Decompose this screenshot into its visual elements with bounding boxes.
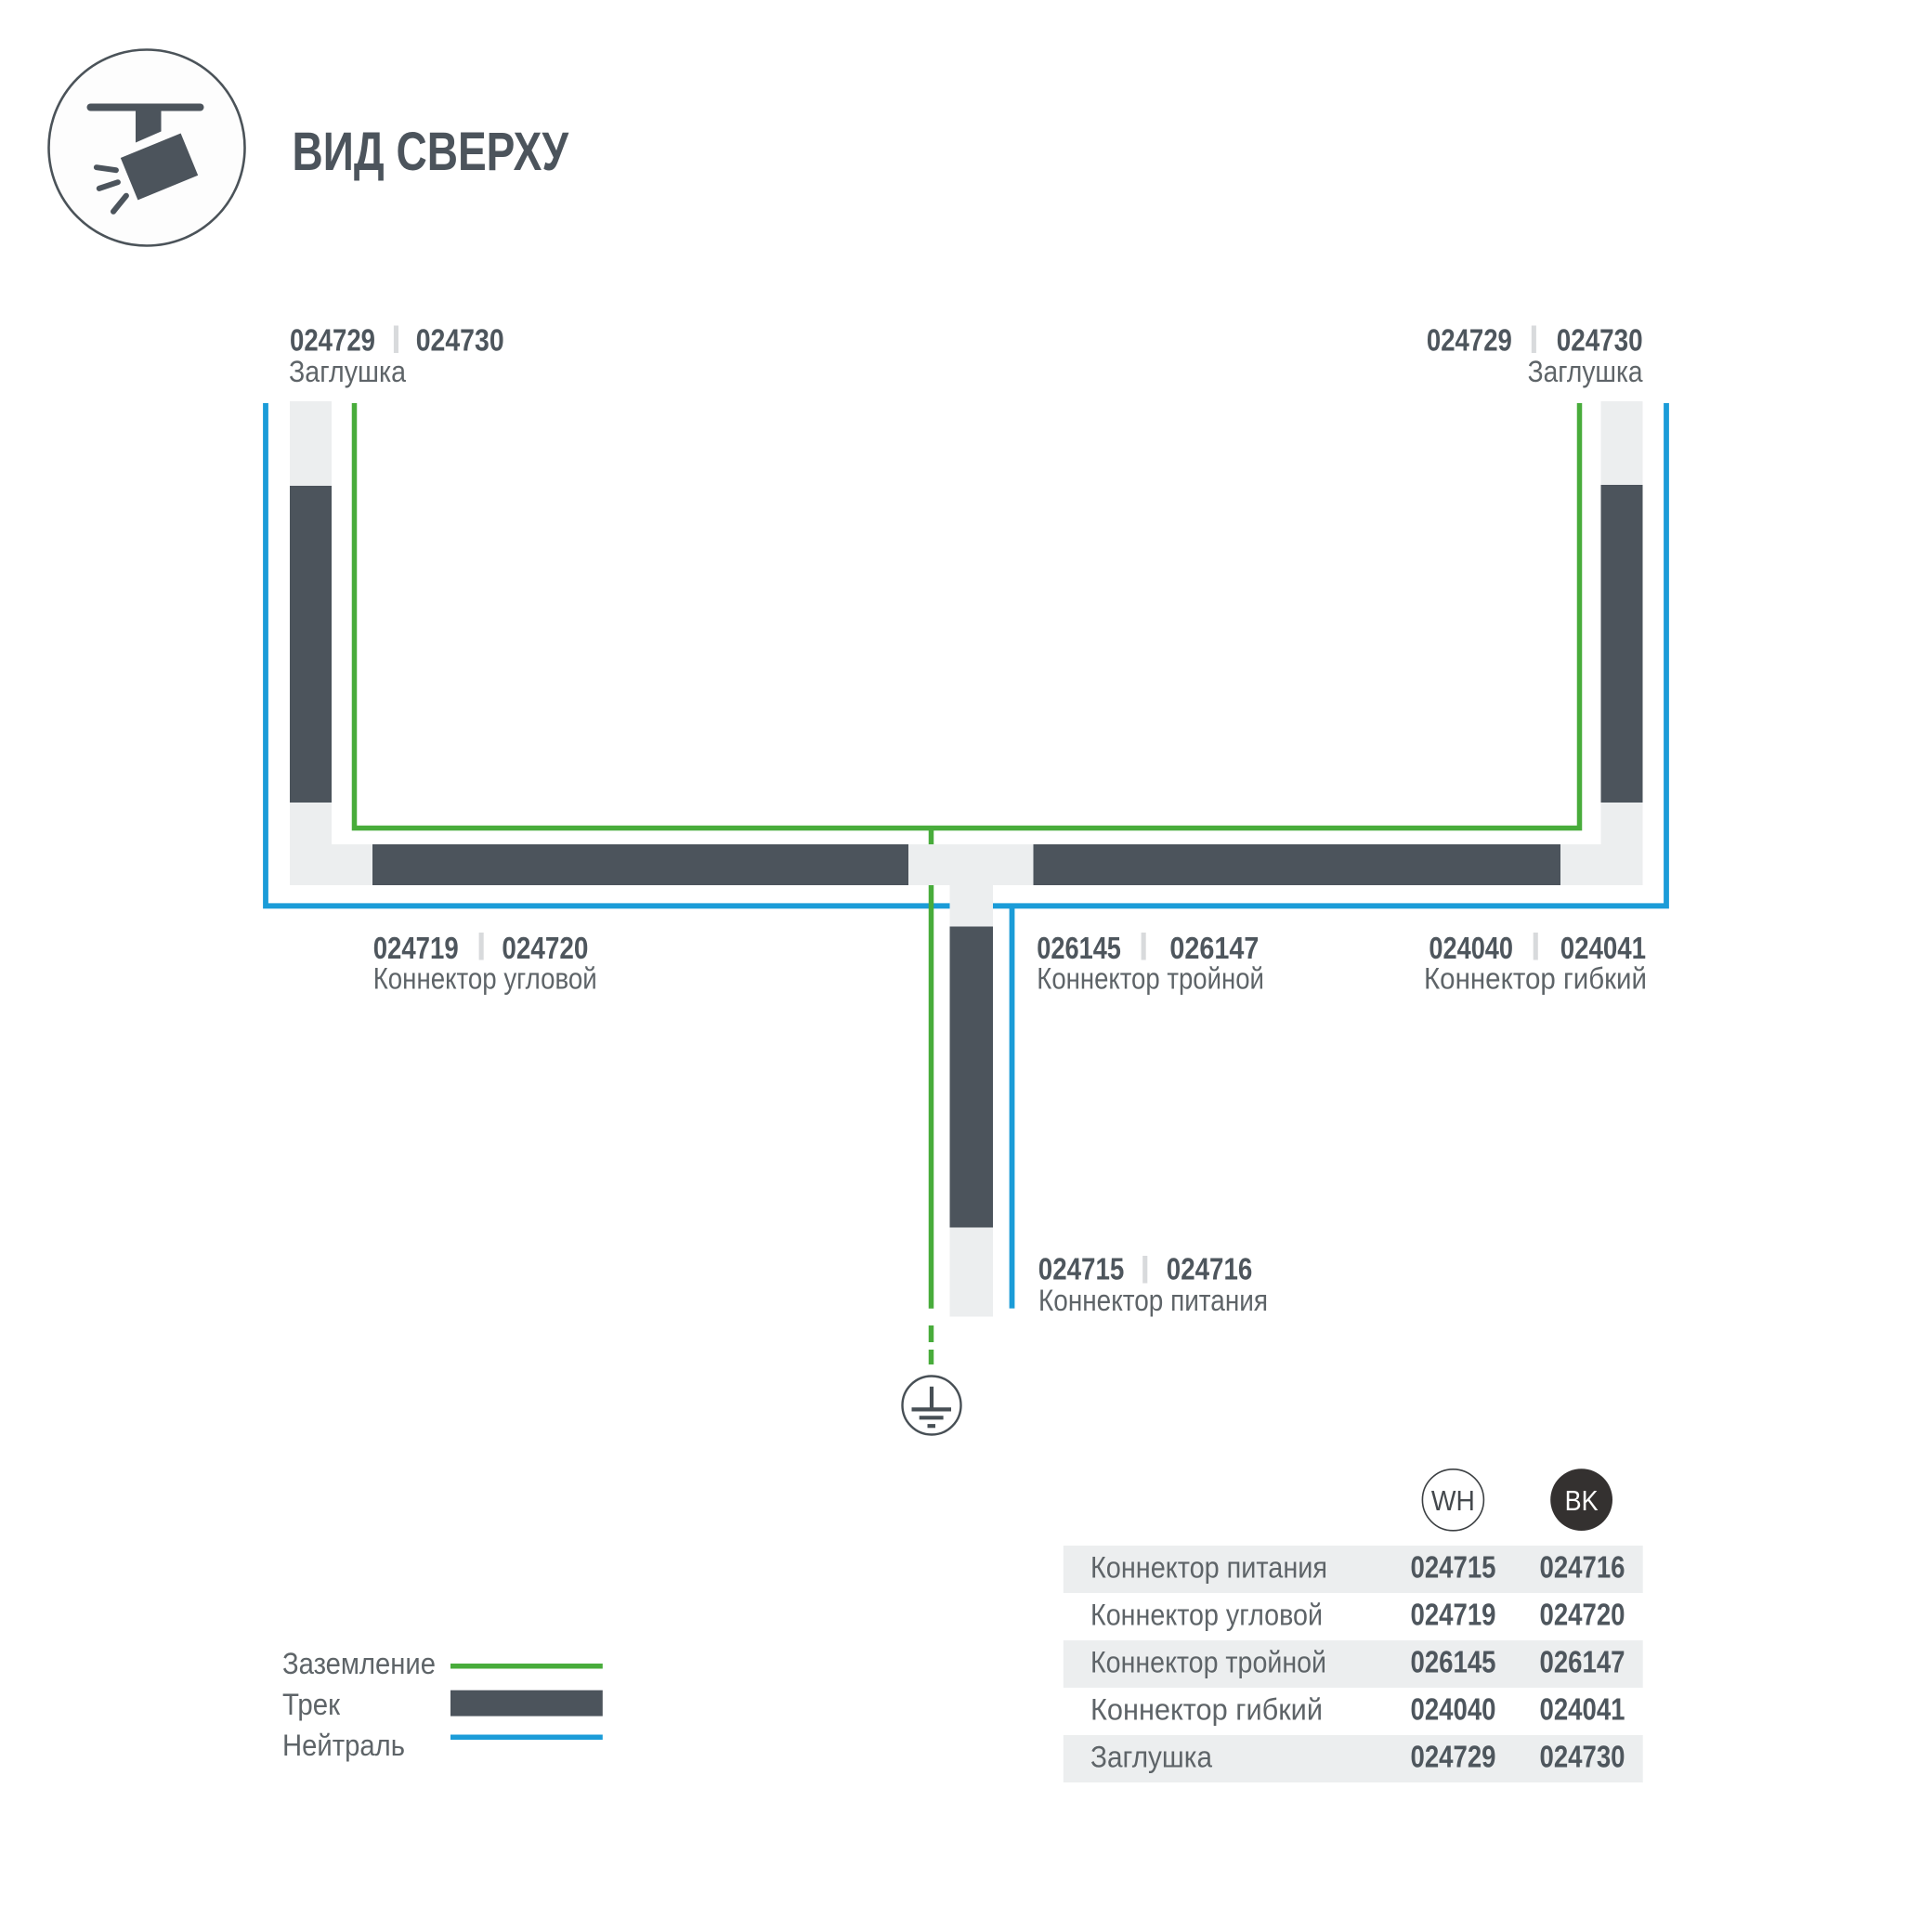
svg-text:Коннектор тройной: Коннектор тройной <box>1037 962 1264 996</box>
svg-text:Коннектор тройной: Коннектор тройной <box>1090 1646 1326 1679</box>
svg-text:Нейтраль: Нейтраль <box>282 1729 405 1762</box>
svg-text:Заглушка: Заглушка <box>289 355 406 388</box>
svg-text:BK: BK <box>1565 1485 1599 1517</box>
svg-text:Коннектор питания: Коннектор питания <box>1090 1551 1327 1585</box>
svg-text:Коннектор питания: Коннектор питания <box>1038 1284 1268 1317</box>
svg-text:026147: 026147 <box>1169 931 1259 965</box>
svg-text:024730: 024730 <box>1557 323 1643 358</box>
svg-text:Коннектор угловой: Коннектор угловой <box>373 962 597 996</box>
svg-text:024729: 024729 <box>290 323 375 358</box>
svg-text:024719: 024719 <box>373 931 459 965</box>
svg-text:024041: 024041 <box>1560 931 1646 965</box>
svg-text:024716: 024716 <box>1540 1550 1625 1585</box>
svg-text:024715: 024715 <box>1038 1252 1125 1286</box>
svg-text:Коннектор гибкий: Коннектор гибкий <box>1090 1693 1323 1727</box>
svg-text:024716: 024716 <box>1167 1252 1253 1286</box>
svg-text:Коннектор гибкий: Коннектор гибкий <box>1424 962 1647 996</box>
svg-text:024729: 024729 <box>1411 1740 1496 1774</box>
svg-text:026145: 026145 <box>1037 931 1121 965</box>
svg-text:026147: 026147 <box>1540 1645 1625 1679</box>
svg-text:024715: 024715 <box>1411 1550 1496 1585</box>
svg-text:Заглушка: Заглушка <box>1090 1741 1212 1774</box>
svg-text:Коннектор угловой: Коннектор угловой <box>1090 1599 1323 1632</box>
svg-text:Трек: Трек <box>282 1688 341 1721</box>
svg-text:WH: WH <box>1431 1485 1475 1517</box>
svg-text:024040: 024040 <box>1411 1692 1496 1727</box>
svg-text:024720: 024720 <box>1540 1598 1625 1632</box>
svg-text:024040: 024040 <box>1429 931 1513 965</box>
svg-text:ВИД СВЕРХУ: ВИД СВЕРХУ <box>293 122 569 182</box>
svg-text:024729: 024729 <box>1427 323 1512 358</box>
svg-text:Заземление: Заземление <box>282 1647 436 1680</box>
svg-text:024719: 024719 <box>1411 1598 1496 1632</box>
svg-text:024730: 024730 <box>416 323 504 358</box>
svg-text:026145: 026145 <box>1411 1645 1496 1679</box>
svg-text:024041: 024041 <box>1540 1692 1625 1727</box>
svg-text:024730: 024730 <box>1540 1740 1625 1774</box>
svg-text:024720: 024720 <box>502 931 588 965</box>
svg-text:Заглушка: Заглушка <box>1528 355 1643 388</box>
